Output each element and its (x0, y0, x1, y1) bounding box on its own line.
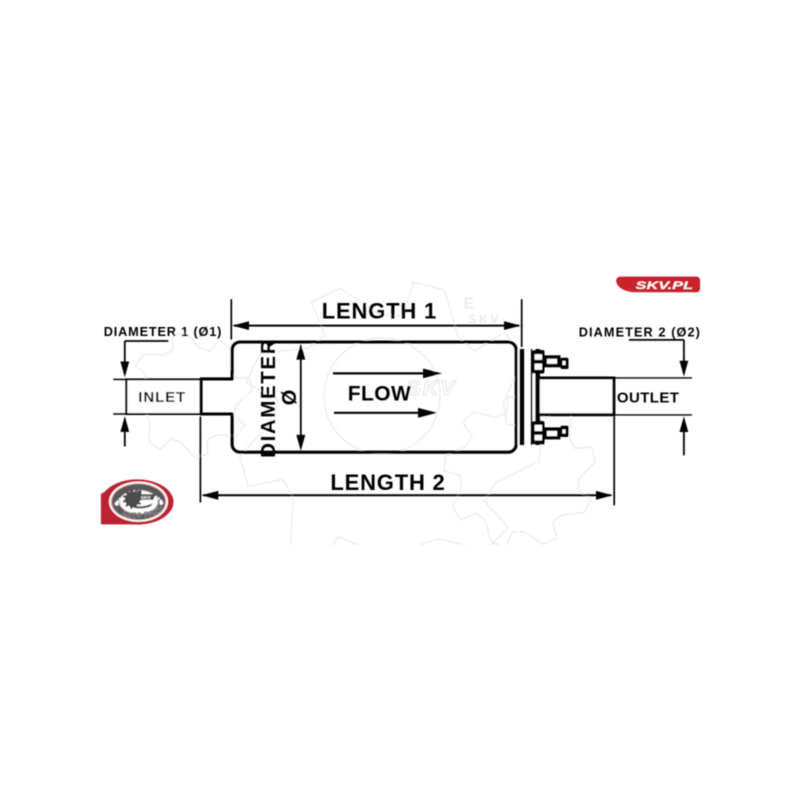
svg-text:Ø: Ø (279, 390, 301, 406)
svg-text:SKV: SKV (406, 376, 456, 400)
svg-text:OUTLET: OUTLET (617, 389, 679, 406)
svg-text:FLOW: FLOW (348, 382, 411, 405)
svg-text:DIAMETER: DIAMETER (257, 338, 280, 458)
svg-text:SKV: SKV (141, 495, 152, 501)
svg-text:INLET: INLET (138, 389, 186, 406)
svg-text:DIAMETER 2 (Ø2): DIAMETER 2 (Ø2) (579, 326, 701, 340)
svg-text:LENGTH 1: LENGTH 1 (322, 298, 437, 323)
svg-text:SKV: SKV (468, 312, 501, 326)
svg-text:LENGTH 2: LENGTH 2 (330, 470, 445, 495)
svg-text:DIAMETER 1 (Ø1): DIAMETER 1 (Ø1) (104, 325, 223, 339)
svg-text:E: E (464, 296, 475, 313)
svg-text:SKV.PL: SKV.PL (636, 280, 694, 292)
